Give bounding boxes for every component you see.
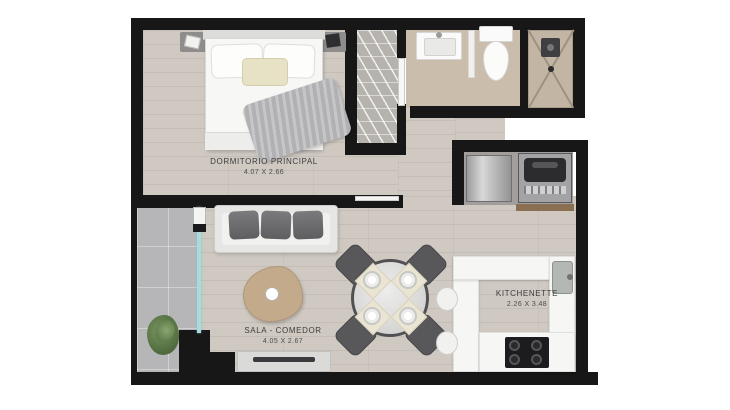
- floor-plan: DORMITORIO PRINCIPAL 4.07 X 2.66 SALA - …: [0, 0, 730, 410]
- toilet-tank: [479, 26, 513, 42]
- hallway-floor: [398, 106, 455, 208]
- plate-ne: [399, 271, 417, 289]
- sofa-cushion-1: [228, 210, 259, 240]
- bedroom-dims: 4.07 X 2.66: [184, 168, 344, 178]
- kitchenette-dims: 2.26 X 3.48: [479, 300, 575, 310]
- shower-drain: [548, 66, 554, 72]
- sofa-cushion-3: [293, 210, 324, 239]
- wall-bathroom-left-upper: [397, 30, 406, 58]
- wall-entry-step-1: [179, 330, 210, 375]
- coffee-table-cup: [265, 287, 279, 301]
- vanity-basin: [424, 38, 456, 56]
- wood-shelf: [516, 204, 574, 211]
- refrigerator: [466, 155, 512, 202]
- burner-1: [509, 340, 520, 351]
- living-name: SALA - COMEDOR: [244, 326, 321, 335]
- wall-left: [131, 18, 143, 208]
- wall-right-bathroom: [573, 18, 585, 118]
- burner-2: [531, 340, 542, 351]
- wall-right-main: [576, 140, 588, 385]
- bar-stool-2: [436, 331, 458, 355]
- wall-left-balcony: [131, 205, 137, 385]
- door-handle: [193, 224, 206, 232]
- washer-controls: [524, 186, 566, 194]
- tv-screen: [253, 357, 315, 362]
- burner-4: [531, 354, 542, 365]
- bedroom-label: DORMITORIO PRINCIPAL 4.07 X 2.66: [184, 156, 344, 178]
- wall-entry-step-2: [209, 352, 235, 375]
- hallway-floor-upper: [455, 118, 505, 142]
- burner-3: [509, 354, 520, 365]
- living-label: SALA - COMEDOR 4.05 X 2.67: [213, 325, 353, 347]
- wall-niche-top: [452, 140, 576, 152]
- bedroom-door-threshold: [355, 196, 399, 201]
- kitchenette-label: KITCHENETTE 2.26 X 3.48: [479, 288, 575, 310]
- bar-stool-1: [436, 287, 458, 311]
- accent-pillow: [242, 58, 288, 86]
- wall-closet-left: [345, 30, 357, 155]
- sink-faucet: [567, 274, 573, 280]
- wall-top: [133, 18, 585, 30]
- bedroom-name: DORMITORIO PRINCIPAL: [210, 157, 318, 166]
- wall-shower-divider: [520, 30, 528, 110]
- plate-se: [399, 307, 417, 325]
- kitchenette-name: KITCHENETTE: [496, 289, 558, 298]
- vanity-faucet: [436, 32, 442, 38]
- bathroom-partition: [468, 30, 475, 78]
- plate-sw: [363, 307, 381, 325]
- living-dims: 4.05 X 2.67: [213, 337, 353, 347]
- closet-floor: [357, 30, 400, 143]
- tray-decor: [325, 33, 341, 48]
- shower-head-icon: [547, 44, 554, 51]
- bathroom-door-leaf: [398, 58, 405, 106]
- washer-handle: [532, 162, 558, 168]
- sofa-cushion-2: [261, 210, 292, 239]
- plate-nw: [363, 271, 381, 289]
- wall-closet-bottom: [345, 143, 403, 155]
